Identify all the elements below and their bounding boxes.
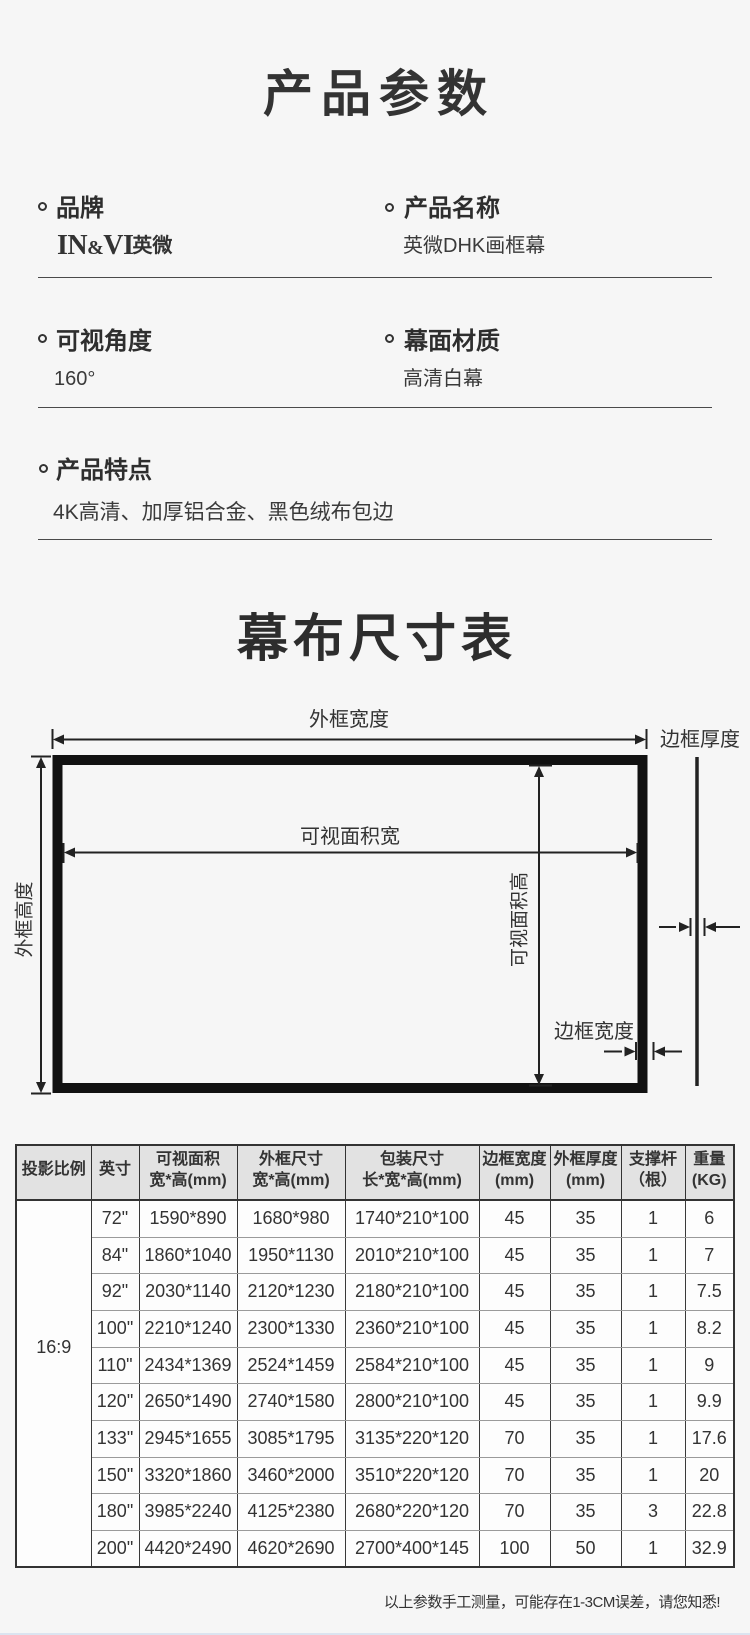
- svg-text:边框厚度: 边框厚度: [660, 728, 740, 751]
- svg-text:外框宽度: 外框宽度: [309, 708, 389, 731]
- svg-text:可视面积宽: 可视面积宽: [300, 825, 400, 848]
- svg-text:外框高度: 外框高度: [14, 881, 36, 957]
- svg-text:可视面积高: 可视面积高: [509, 872, 531, 967]
- svg-text:边框宽度: 边框宽度: [554, 1020, 634, 1043]
